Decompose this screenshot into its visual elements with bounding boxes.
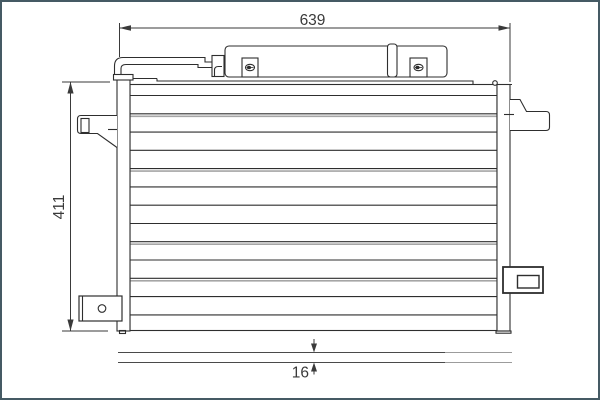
tank-top-cap bbox=[114, 75, 134, 81]
mounting-bracket-left-lower bbox=[79, 296, 122, 321]
dimension-width-label: 639 bbox=[300, 12, 326, 29]
dimension-height-label: 411 bbox=[51, 195, 68, 220]
pipe-fitting bbox=[212, 56, 224, 77]
dimension-depth-label: 16 bbox=[292, 365, 309, 382]
mount-tab-right bbox=[410, 58, 427, 77]
condenser-technical-drawing: 639 411 16 bbox=[0, 0, 600, 400]
corner-rivet bbox=[493, 81, 498, 86]
technical-drawing-page: 639 411 16 bbox=[0, 0, 600, 400]
top-tank-assembly bbox=[225, 44, 447, 77]
mount-tab-left bbox=[242, 58, 258, 77]
mounting-bracket-right-lower bbox=[503, 267, 543, 293]
left-tank bbox=[117, 76, 130, 334]
tank-clamp-band bbox=[388, 44, 398, 77]
